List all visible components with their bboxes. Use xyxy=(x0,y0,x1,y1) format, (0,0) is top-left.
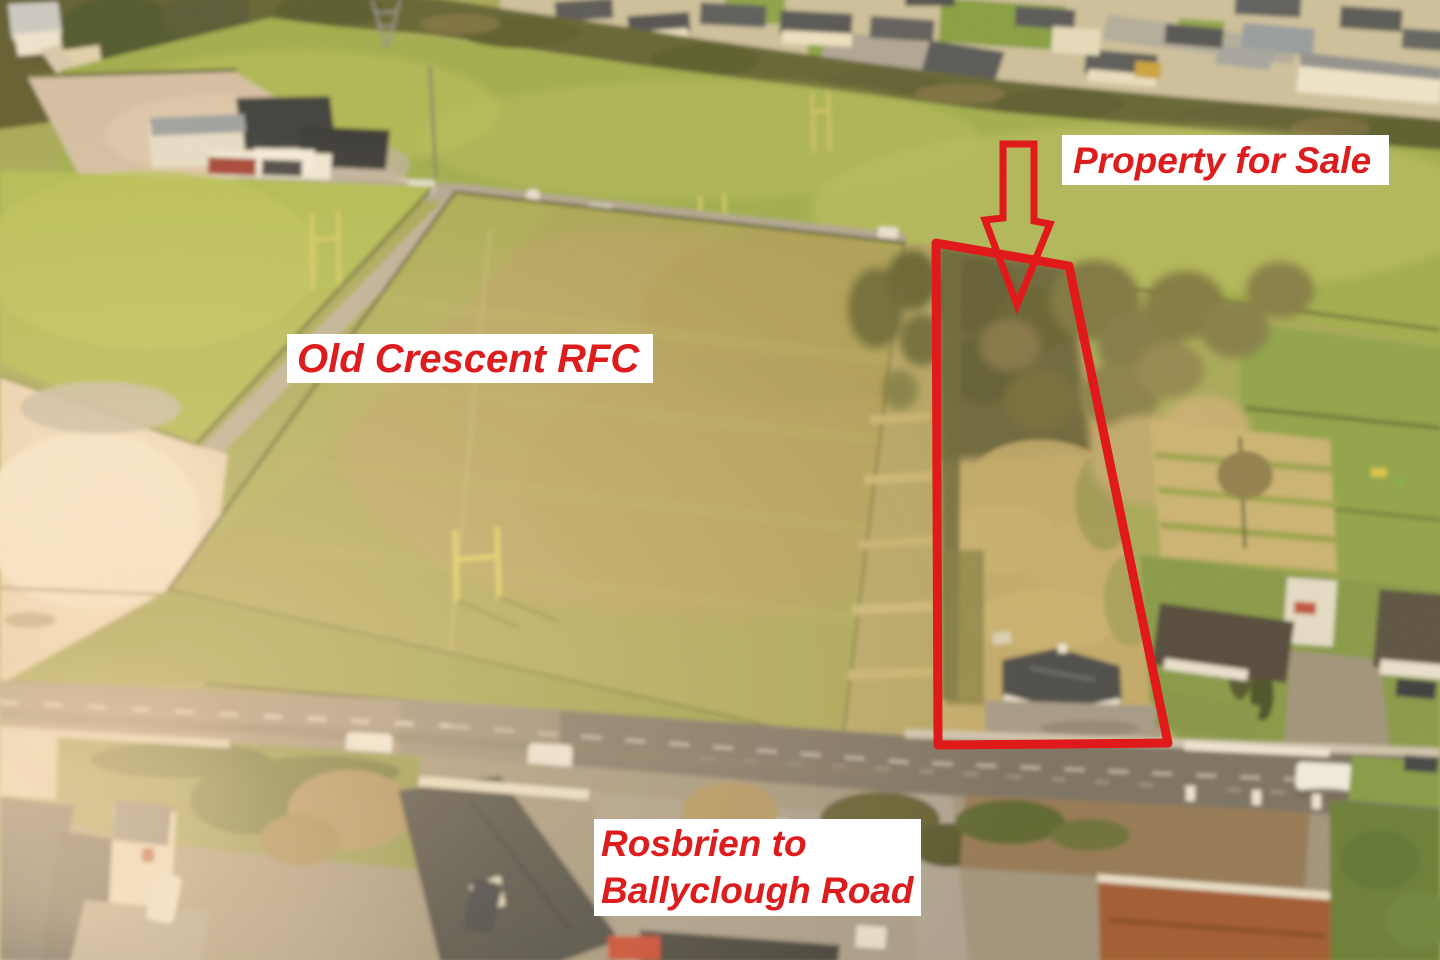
svg-text:Property for Sale: Property for Sale xyxy=(1073,140,1371,181)
svg-text:Ballyclough Road: Ballyclough Road xyxy=(601,870,915,911)
svg-text:Rosbrien to: Rosbrien to xyxy=(601,823,807,864)
svg-text:Old Crescent RFC: Old Crescent RFC xyxy=(297,337,640,381)
